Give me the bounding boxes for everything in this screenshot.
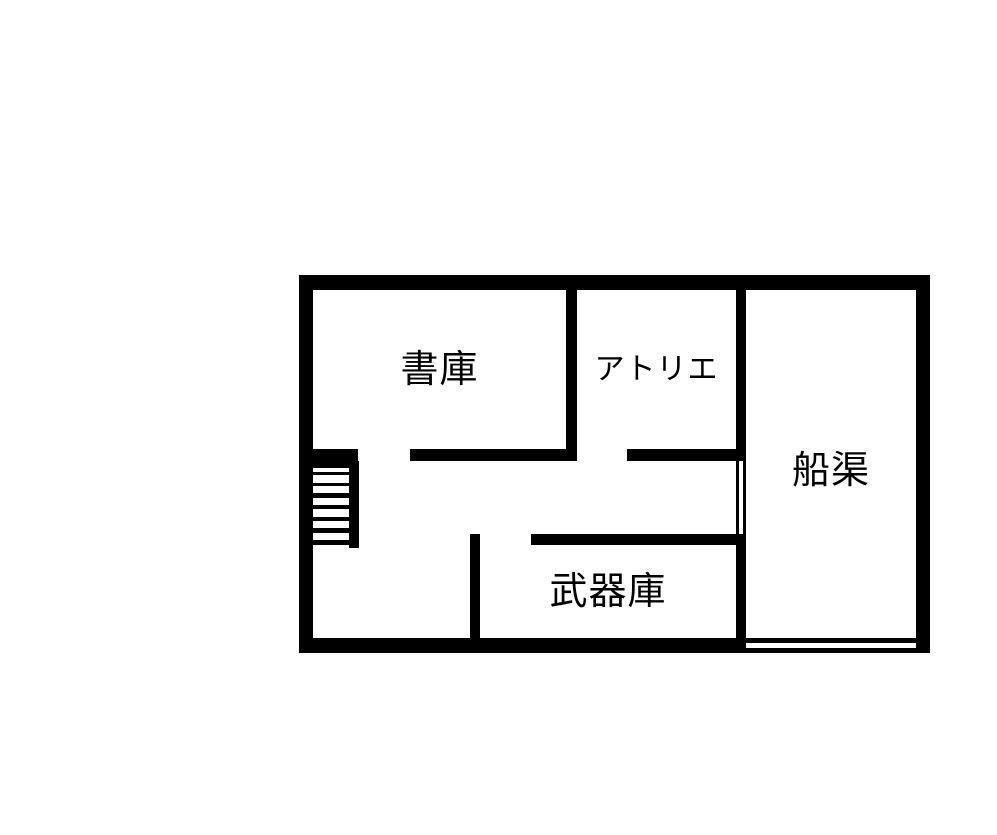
room-label-library: 書庫 xyxy=(400,351,478,389)
stair-tread xyxy=(313,521,349,528)
room-label-armory: 武器庫 xyxy=(549,573,666,611)
wall-armory-north-segment-2 xyxy=(531,534,746,545)
opening-dock-south xyxy=(746,643,916,648)
wall-outer-top xyxy=(299,275,930,290)
stair-tread xyxy=(313,468,349,472)
wall-corridor-north-segment-1 xyxy=(313,449,358,461)
floor-plan: 書庫 アトリエ 船渠 武器庫 xyxy=(0,0,997,835)
stair-tread xyxy=(313,475,349,483)
staircase xyxy=(313,461,349,545)
stair-tread xyxy=(313,509,349,517)
room-atelier: アトリエ xyxy=(577,290,736,449)
room-label-atelier: アトリエ xyxy=(595,355,719,385)
wall-armory-west xyxy=(470,534,480,638)
stair-tread xyxy=(313,498,349,505)
wall-library-atelier-divider xyxy=(566,289,577,461)
wall-outer-left xyxy=(299,275,313,653)
room-label-dock: 船渠 xyxy=(792,452,870,490)
opening-dock-west xyxy=(739,461,743,534)
stair-tread xyxy=(313,486,349,493)
room-dock: 船渠 xyxy=(746,290,916,638)
stair-tread xyxy=(313,533,349,540)
wall-corridor-north-segment-3 xyxy=(627,449,746,461)
wall-staircase-east xyxy=(349,461,359,548)
room-armory: 武器庫 xyxy=(480,545,736,638)
wall-outer-right xyxy=(916,275,930,653)
room-library: 書庫 xyxy=(313,290,566,449)
wall-corridor-north-segment-2 xyxy=(410,449,577,461)
